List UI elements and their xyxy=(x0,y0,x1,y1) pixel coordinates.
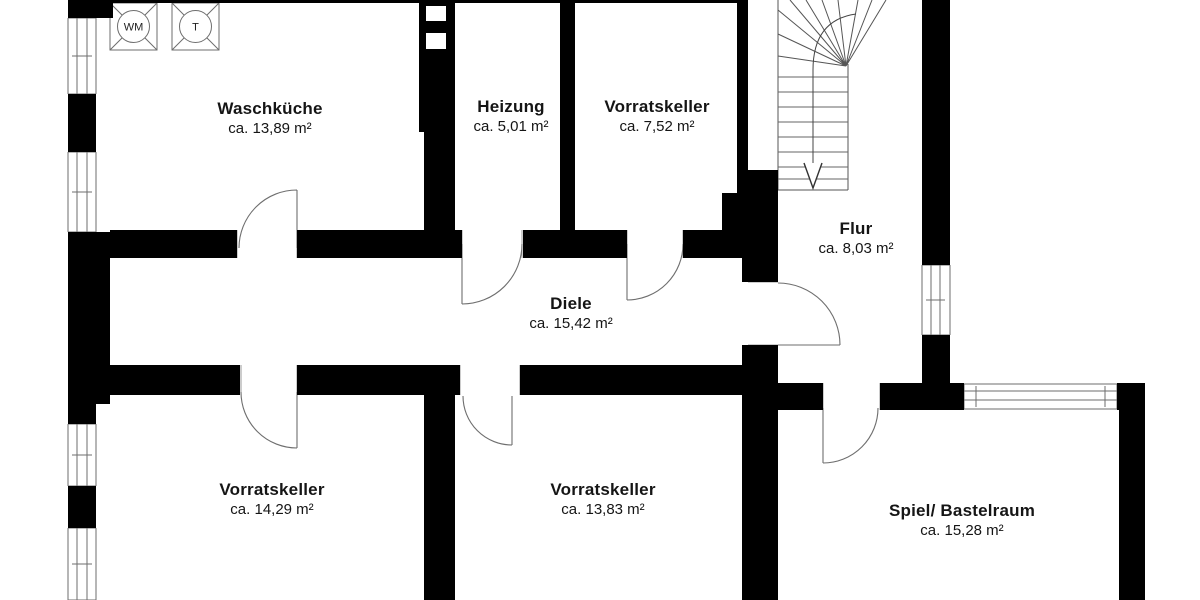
wall-segment xyxy=(560,0,575,230)
wall-segment xyxy=(68,404,96,424)
wall-segment xyxy=(742,170,778,282)
wall-segment xyxy=(1117,383,1145,410)
wall-segment xyxy=(523,230,627,258)
window-icon xyxy=(964,384,1117,409)
room-label-vorratskeller-1: Vorratskeller ca. 7,52 m² xyxy=(604,97,709,135)
room-name: Heizung xyxy=(473,97,548,117)
wall-segment xyxy=(68,486,96,528)
wall-segment xyxy=(922,335,950,410)
wall-segment xyxy=(68,232,110,404)
door-diele-flur xyxy=(778,283,840,345)
room-name: Diele xyxy=(529,294,612,314)
room-label-waschkueche: Waschküche ca. 13,89 m² xyxy=(217,99,322,137)
wall-segment xyxy=(742,345,778,600)
room-area: ca. 15,28 m² xyxy=(889,522,1035,539)
staircase xyxy=(778,0,886,190)
door-vorratskeller-2 xyxy=(241,392,297,448)
room-name: Flur xyxy=(818,219,893,239)
wall-segment xyxy=(96,0,420,3)
stairs-down-arrow-icon xyxy=(804,163,822,188)
wall-segment xyxy=(68,94,96,152)
wall-segment xyxy=(1119,410,1145,600)
room-label-heizung: Heizung ca. 5,01 m² xyxy=(473,97,548,135)
wall-segment xyxy=(683,230,750,258)
room-name: Vorratskeller xyxy=(219,480,324,500)
window-icon xyxy=(922,265,950,335)
dryer-label: T xyxy=(192,22,199,34)
wall-segment xyxy=(737,0,748,193)
chimney-vent xyxy=(426,6,446,21)
door-waschkueche xyxy=(239,190,297,248)
wall-segment xyxy=(110,365,240,395)
room-area: ca. 13,83 m² xyxy=(550,501,655,518)
wall-segment xyxy=(452,0,738,3)
door-heizung xyxy=(462,244,522,304)
room-label-diele: Diele ca. 15,42 m² xyxy=(529,294,612,332)
door-spiel-bastelraum xyxy=(823,408,878,463)
chimney-vent xyxy=(426,33,446,49)
wall-segment xyxy=(778,383,823,410)
room-label-vorratskeller-2: Vorratskeller ca. 14,29 m² xyxy=(219,480,324,518)
room-area: ca. 7,52 m² xyxy=(604,118,709,135)
room-label-spiel-bastelraum: Spiel/ Bastelraum ca. 15,28 m² xyxy=(889,501,1035,539)
room-area: ca. 14,29 m² xyxy=(219,501,324,518)
dryer-icon: T xyxy=(172,3,219,50)
room-label-flur: Flur ca. 8,03 m² xyxy=(818,219,893,257)
room-name: Spiel/ Bastelraum xyxy=(889,501,1035,521)
room-area: ca. 13,89 m² xyxy=(217,120,322,137)
door-vorratskeller-1 xyxy=(627,244,683,300)
room-name: Vorratskeller xyxy=(604,97,709,117)
room-area: ca. 8,03 m² xyxy=(818,240,893,257)
floor-plan: WM T Waschküche ca. 13,89 m² Heizung ca.… xyxy=(0,0,1200,600)
wall-segment xyxy=(110,230,237,258)
room-label-vorratskeller-3: Vorratskeller ca. 13,83 m² xyxy=(550,480,655,518)
room-area: ca. 5,01 m² xyxy=(473,118,548,135)
wall-segment xyxy=(297,230,462,258)
wall-segment xyxy=(922,0,950,265)
door-vorratskeller-3 xyxy=(463,396,512,445)
washing-machine-icon: WM xyxy=(110,3,157,50)
room-name: Vorratskeller xyxy=(550,480,655,500)
room-area: ca. 15,42 m² xyxy=(529,315,612,332)
wall-segment xyxy=(520,365,745,395)
washing-machine-label: WM xyxy=(124,22,144,34)
wall-segment xyxy=(424,390,455,600)
room-name: Waschküche xyxy=(217,99,322,119)
